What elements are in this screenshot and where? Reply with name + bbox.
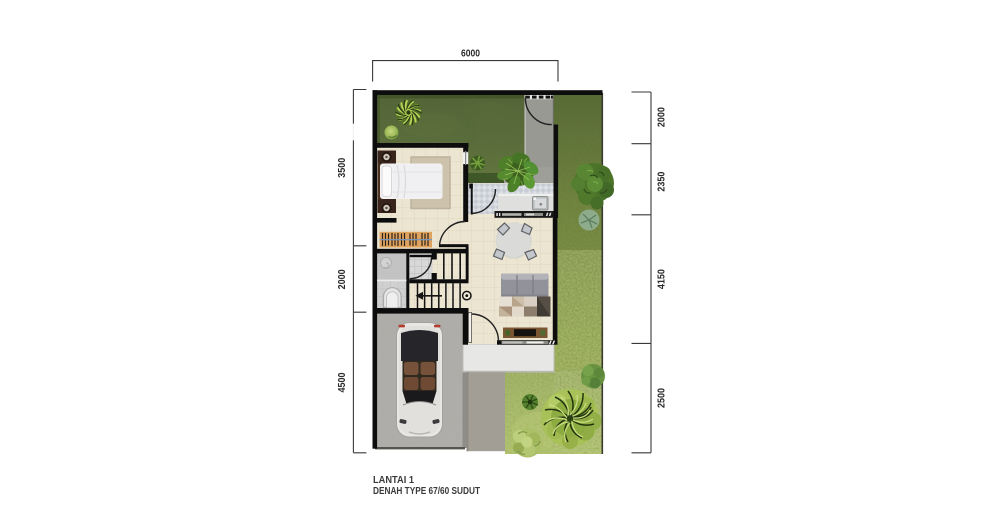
svg-text:2350: 2350 (657, 171, 668, 191)
svg-text:6000: 6000 (461, 49, 480, 60)
svg-text:4150: 4150 (657, 269, 668, 289)
svg-text:2000: 2000 (657, 107, 668, 127)
svg-text:4500: 4500 (337, 372, 348, 392)
svg-text:3500: 3500 (337, 157, 348, 177)
svg-text:DENAH TYPE 67/60 SUDUT: DENAH TYPE 67/60 SUDUT (373, 485, 480, 497)
svg-text:2500: 2500 (657, 388, 668, 408)
svg-text:2000: 2000 (337, 269, 348, 289)
